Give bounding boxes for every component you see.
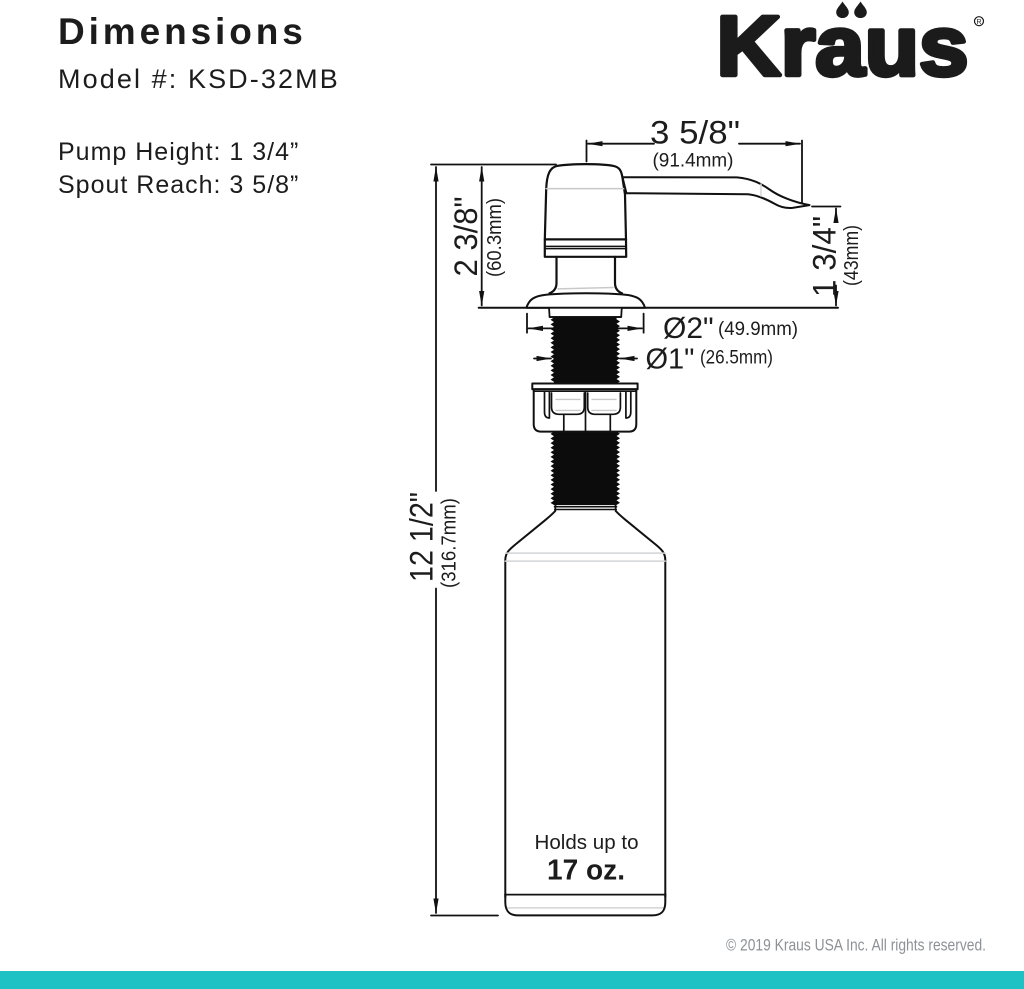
svg-text:(49.9mm): (49.9mm) (718, 319, 798, 340)
svg-text:(316.7mm): (316.7mm) (438, 498, 461, 588)
svg-text:(91.4mm): (91.4mm) (653, 151, 734, 172)
svg-text:(60.3mm): (60.3mm) (483, 198, 506, 277)
svg-text:1 3/4": 1 3/4" (807, 216, 843, 297)
svg-text:Holds up to: Holds up to (535, 831, 639, 854)
svg-text:(26.5mm): (26.5mm) (700, 348, 773, 369)
svg-text:(43mm): (43mm) (841, 225, 863, 286)
svg-text:17 oz.: 17 oz. (547, 855, 625, 887)
svg-text:Ø1": Ø1" (646, 344, 695, 376)
svg-text:© 2019 Kraus USA Inc. All righ: © 2019 Kraus USA Inc. All rights reserve… (726, 937, 986, 955)
svg-text:R: R (976, 19, 981, 26)
svg-text:3 5/8": 3 5/8" (650, 115, 740, 151)
svg-text:12 1/2": 12 1/2" (404, 492, 440, 582)
svg-text:2 3/8": 2 3/8" (448, 197, 484, 277)
svg-text:Ø2": Ø2" (663, 312, 714, 345)
